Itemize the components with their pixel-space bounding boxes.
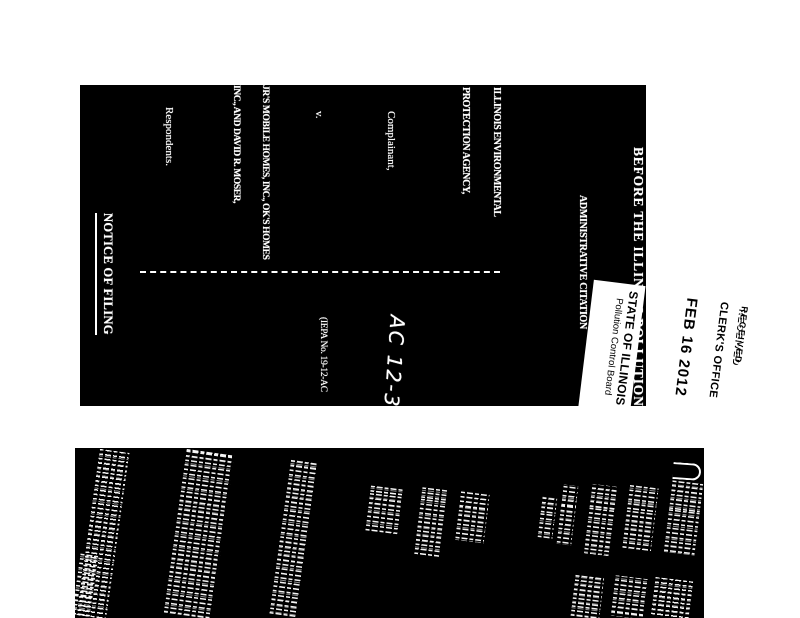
illegible-text-line	[584, 484, 617, 557]
clerk-received-stamp: RECEIVED CLERK'S OFFICE FEB 16 2012 STAT…	[566, 284, 750, 430]
illegible-text-line	[556, 484, 578, 545]
illegible-text-line	[365, 484, 405, 536]
respondents-label: Respondents.	[163, 107, 175, 166]
scanned-page-top: BEFORE THE ILLINOIS POLLUTION CONTROL BO…	[80, 85, 646, 406]
scanned-page-bottom	[75, 448, 704, 618]
illegible-text-line	[622, 483, 659, 552]
complainant-label: Complainant,	[385, 111, 397, 171]
illegible-text-line	[651, 577, 693, 618]
respondent-name-line2: INC., AND DAVID R. MOSER,	[231, 85, 241, 203]
complainant-name-line2: PROTECTION AGENCY,	[460, 87, 471, 194]
illegible-text-line	[414, 487, 447, 560]
rotated-document-surface: BEFORE THE ILLINOIS POLLUTION CONTROL BO…	[80, 85, 646, 406]
illegible-text-line	[664, 479, 704, 556]
scanned-fax-page: BEFORE THE ILLINOIS POLLUTION CONTROL BO…	[0, 0, 800, 618]
iepa-case-number: (IEPA No. 19-12-AC	[318, 317, 328, 392]
illegible-text-line	[537, 495, 557, 540]
versus-label: v.	[313, 111, 325, 119]
clerks-office-text: CLERK'S OFFICE	[706, 301, 730, 399]
received-stamp-text: RECEIVED	[733, 306, 750, 365]
caption-paren-divider	[140, 271, 500, 273]
curved-pen-mark	[672, 462, 701, 481]
notice-of-filing-heading: NOTICE OF FILING	[95, 213, 115, 335]
illegible-text-line	[570, 572, 604, 618]
complainant-name-line1: ILLINOIS ENVIRONMENTAL	[491, 87, 502, 217]
illegible-text-line	[611, 575, 650, 618]
pollution-control-board-stamp-box: STATE OF ILLINOIS Pollution Control Boar…	[578, 280, 645, 413]
illegible-text-line	[269, 459, 318, 618]
respondent-name-line1: JR'S MOBILE HOMES, INC., OK'S HOMES	[260, 85, 270, 259]
illegible-text-line	[455, 490, 490, 543]
handwritten-docket-number: AC 12-30	[378, 314, 409, 406]
date-stamp-text: FEB 16 2012	[671, 297, 700, 398]
illegible-text-line	[164, 448, 235, 618]
